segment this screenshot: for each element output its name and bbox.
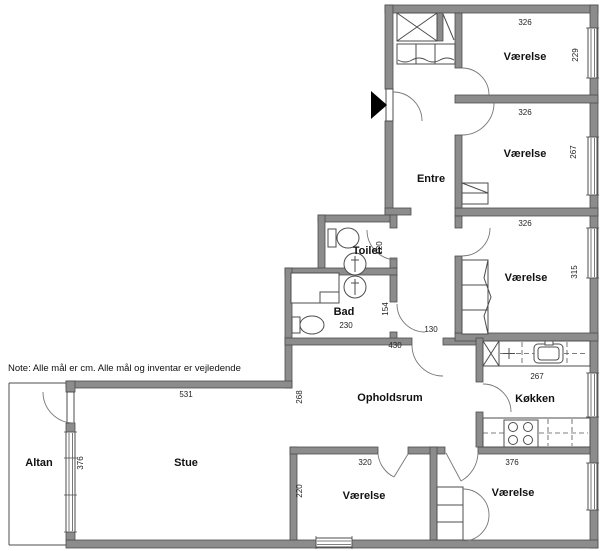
dim-label: 326 bbox=[518, 18, 532, 27]
wall bbox=[318, 215, 325, 275]
door-arc bbox=[378, 454, 394, 477]
kitchen-sink-icon bbox=[534, 341, 563, 363]
shower-icon bbox=[291, 273, 339, 303]
room-label-opholdsrum: Opholdsrum bbox=[357, 392, 423, 404]
room-label-vaerelse-br: Værelse bbox=[492, 487, 535, 499]
wall bbox=[430, 447, 437, 540]
wall bbox=[290, 447, 378, 454]
wall bbox=[390, 215, 397, 228]
wall bbox=[66, 532, 75, 540]
wall bbox=[408, 447, 445, 454]
door-arc bbox=[483, 384, 511, 412]
door-leaf bbox=[394, 454, 408, 477]
toilet-icon bbox=[292, 316, 324, 334]
window bbox=[586, 137, 599, 195]
wall bbox=[66, 381, 75, 392]
bedroom-bl-door bbox=[378, 454, 408, 477]
door-leaf bbox=[386, 89, 393, 121]
wall bbox=[285, 338, 292, 388]
entrance-door bbox=[371, 89, 422, 121]
dim-label: 315 bbox=[570, 265, 579, 279]
dim-label: 320 bbox=[358, 458, 372, 467]
wall bbox=[455, 256, 462, 333]
room-label-entre: Entre bbox=[417, 173, 445, 185]
dim-label: 220 bbox=[295, 484, 304, 498]
dim-label: 376 bbox=[505, 458, 519, 467]
wardrobe-icon bbox=[397, 44, 455, 64]
dim-label: 267 bbox=[569, 145, 578, 159]
note-text: Note: Alle mål er cm. Alle mål og invent… bbox=[8, 363, 241, 374]
wall bbox=[385, 5, 393, 89]
dim-label: 130 bbox=[424, 325, 438, 334]
wall bbox=[385, 121, 393, 215]
wardrobe-icon bbox=[462, 183, 488, 204]
dim-label: 531 bbox=[179, 390, 193, 399]
window bbox=[586, 373, 599, 417]
wall bbox=[455, 95, 598, 103]
door-leaf bbox=[67, 392, 74, 423]
door-arc bbox=[462, 228, 490, 256]
kitchen-counter-top bbox=[483, 341, 590, 366]
wall bbox=[385, 208, 411, 215]
wall bbox=[390, 332, 397, 338]
door-arc bbox=[461, 453, 478, 481]
wall bbox=[437, 13, 443, 41]
floor-plan-page: Note: Alle mål er cm. Alle mål og invent… bbox=[0, 0, 600, 551]
window bbox=[586, 228, 599, 278]
wall bbox=[455, 208, 598, 216]
wardrobe-icon bbox=[462, 260, 491, 334]
entrance-arrow-icon bbox=[371, 91, 387, 119]
kitchen-counter-bottom bbox=[483, 418, 590, 447]
dim-label: 376 bbox=[76, 456, 85, 470]
dim-label: 230 bbox=[339, 321, 353, 330]
room-label-stue: Stue bbox=[174, 457, 198, 469]
cabinet-x-icon bbox=[397, 13, 454, 41]
window bbox=[64, 432, 77, 532]
wall bbox=[66, 423, 75, 432]
bath-fixtures bbox=[291, 228, 366, 334]
dim-label: 326 bbox=[518, 219, 532, 228]
balcony-door bbox=[43, 392, 74, 423]
door-arc bbox=[412, 345, 443, 376]
dim-label: 268 bbox=[295, 390, 304, 404]
window bbox=[316, 536, 352, 549]
door-arc bbox=[397, 304, 425, 332]
room-label-vaerelse-bl: Værelse bbox=[343, 490, 386, 502]
door-arc bbox=[393, 92, 422, 121]
wall bbox=[476, 338, 483, 382]
wall bbox=[318, 215, 393, 222]
wardrobe-icon bbox=[437, 487, 489, 541]
room-label-vaerelse-top: Værelse bbox=[504, 51, 547, 63]
floor-plan: Note: Alle mål er cm. Alle mål og invent… bbox=[0, 0, 600, 551]
door-arc bbox=[462, 68, 489, 95]
doors bbox=[43, 68, 511, 481]
stove-icon bbox=[504, 420, 538, 447]
room-label-vaerelse-mid: Værelse bbox=[504, 148, 547, 160]
room-label-koekken: Køkken bbox=[515, 393, 555, 405]
dim-label: 120 bbox=[375, 241, 384, 255]
wall bbox=[455, 13, 462, 68]
room-label-altan: Altan bbox=[25, 457, 53, 469]
room-label-vaerelse-lower: Værelse bbox=[505, 272, 548, 284]
door-arc bbox=[462, 103, 494, 135]
wall bbox=[390, 275, 397, 302]
wall bbox=[476, 412, 483, 447]
dim-label: 154 bbox=[381, 302, 390, 316]
dim-label: 430 bbox=[388, 341, 402, 350]
dim-label: 326 bbox=[518, 108, 532, 117]
door-leaf bbox=[446, 453, 461, 481]
dim-label: 229 bbox=[571, 48, 580, 62]
wall bbox=[455, 216, 462, 228]
wall bbox=[385, 5, 598, 13]
window bbox=[586, 463, 599, 510]
room-label-bad: Bad bbox=[334, 306, 355, 318]
wall bbox=[66, 381, 292, 388]
dim-label: 267 bbox=[530, 372, 544, 381]
bedroom-br-door bbox=[446, 453, 478, 481]
wall bbox=[455, 135, 462, 208]
wall bbox=[478, 447, 590, 454]
window bbox=[586, 28, 599, 78]
sink-icon bbox=[344, 276, 366, 298]
